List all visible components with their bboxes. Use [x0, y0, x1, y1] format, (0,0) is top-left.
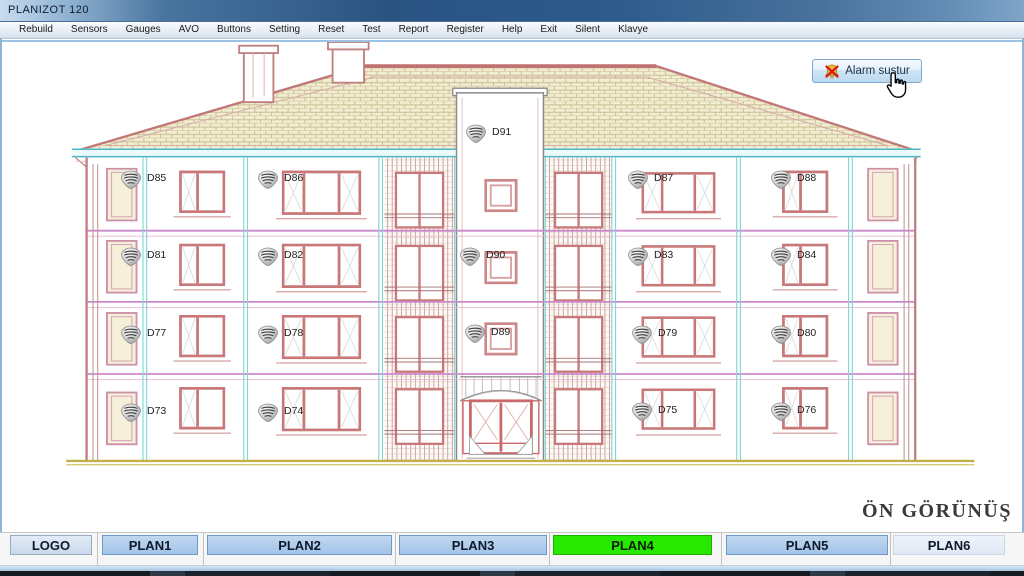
tab-divider — [890, 533, 891, 565]
menu-item-gauges[interactable]: Gauges — [117, 22, 170, 38]
tab-divider — [549, 533, 550, 565]
menu-item-test[interactable]: Test — [353, 22, 389, 38]
smoke-detector-icon — [120, 403, 142, 423]
detector-label: D86 — [284, 170, 303, 184]
menu-bar: RebuildSensorsGaugesAVOButtonsSettingRes… — [0, 22, 1024, 39]
detector-label: D77 — [147, 325, 166, 339]
smoke-detector-icon — [120, 170, 142, 190]
detector-label: D84 — [797, 247, 816, 261]
tab-plan4[interactable]: PLAN4 — [553, 535, 712, 555]
smoke-detector-icon — [627, 247, 649, 267]
detector-label: D88 — [797, 170, 816, 184]
tab-plan2[interactable]: PLAN2 — [207, 535, 392, 555]
tab-logo[interactable]: LOGO — [10, 535, 92, 555]
tab-plan1[interactable]: PLAN1 — [102, 535, 198, 555]
detector-marker-d88[interactable]: D88 — [770, 170, 816, 190]
tab-plan6[interactable]: PLAN6 — [893, 535, 1005, 555]
smoke-detector-icon — [770, 170, 792, 190]
smoke-detector-icon — [770, 402, 792, 422]
menu-item-silent[interactable]: Silent — [566, 22, 609, 38]
detector-label: D73 — [147, 403, 166, 417]
ground-line — [66, 461, 974, 465]
detector-marker-d79[interactable]: D79 — [631, 325, 677, 345]
smoke-detector-icon — [627, 170, 649, 190]
smoke-detector-icon — [459, 247, 481, 267]
detector-label: D74 — [284, 403, 303, 417]
tab-divider — [721, 533, 722, 565]
detector-marker-d73[interactable]: D73 — [120, 403, 166, 423]
alarm-bell-muted-icon — [824, 64, 840, 79]
taskbar-strip — [0, 571, 1024, 576]
detector-marker-d74[interactable]: D74 — [257, 403, 303, 423]
title-bar: PLANIZOT 120 — [0, 0, 1024, 22]
detector-label: D87 — [654, 170, 673, 184]
detector-marker-d87[interactable]: D87 — [627, 170, 673, 190]
smoke-detector-icon — [770, 325, 792, 345]
detector-marker-d80[interactable]: D80 — [770, 325, 816, 345]
view-caption: ÖN GÖRÜNÜŞ — [840, 500, 1012, 523]
smoke-detector-icon — [464, 324, 486, 344]
detector-marker-d90[interactable]: D90 — [459, 247, 505, 267]
window-border-left — [0, 38, 2, 571]
detector-marker-d75[interactable]: D75 — [631, 402, 677, 422]
smoke-detector-icon — [120, 247, 142, 267]
detector-marker-d84[interactable]: D84 — [770, 247, 816, 267]
menu-item-reset[interactable]: Reset — [309, 22, 353, 38]
detector-label: D81 — [147, 247, 166, 261]
app-window: PLANIZOT 120 RebuildSensorsGaugesAVOButt… — [0, 0, 1024, 576]
detector-marker-d78[interactable]: D78 — [257, 325, 303, 345]
detector-label: D80 — [797, 325, 816, 339]
menu-item-sensors[interactable]: Sensors — [62, 22, 117, 38]
menu-item-avo[interactable]: AVO — [170, 22, 208, 38]
tab-divider — [97, 533, 98, 565]
smoke-detector-icon — [631, 325, 653, 345]
detector-label: D79 — [658, 325, 677, 339]
hand-cursor-icon — [886, 72, 908, 103]
detector-label: D89 — [491, 324, 510, 338]
menu-item-rebuild[interactable]: Rebuild — [10, 22, 62, 38]
tab-divider — [395, 533, 396, 565]
detector-label: D91 — [492, 124, 511, 138]
menu-item-register[interactable]: Register — [438, 22, 493, 38]
menu-item-report[interactable]: Report — [390, 22, 438, 38]
menu-item-exit[interactable]: Exit — [531, 22, 566, 38]
detector-marker-d82[interactable]: D82 — [257, 247, 303, 267]
smoke-detector-icon — [770, 247, 792, 267]
menu-item-help[interactable]: Help — [493, 22, 532, 38]
detector-label: D85 — [147, 170, 166, 184]
detector-marker-d77[interactable]: D77 — [120, 325, 166, 345]
building-drawing — [0, 42, 1024, 534]
detector-label: D76 — [797, 402, 816, 416]
smoke-detector-icon — [120, 325, 142, 345]
detector-marker-d81[interactable]: D81 — [120, 247, 166, 267]
detector-marker-d83[interactable]: D83 — [627, 247, 673, 267]
smoke-detector-icon — [257, 247, 279, 267]
detector-marker-d86[interactable]: D86 — [257, 170, 303, 190]
detector-label: D78 — [284, 325, 303, 339]
plan-tab-bar: LOGOPLAN1PLAN2PLAN3PLAN4PLAN5PLAN6 — [0, 532, 1024, 565]
window-title: PLANIZOT 120 — [8, 4, 89, 16]
detector-marker-d76[interactable]: D76 — [770, 402, 816, 422]
detector-label: D83 — [654, 247, 673, 261]
detector-marker-d89[interactable]: D89 — [464, 324, 510, 344]
detector-marker-d91[interactable]: D91 — [465, 124, 511, 144]
smoke-detector-icon — [257, 170, 279, 190]
smoke-detector-icon — [465, 124, 487, 144]
detector-label: D82 — [284, 247, 303, 261]
menu-item-buttons[interactable]: Buttons — [208, 22, 260, 38]
detector-label: D75 — [658, 402, 677, 416]
smoke-detector-icon — [631, 402, 653, 422]
menu-item-klavye[interactable]: Klavye — [609, 22, 657, 38]
plan-canvas: D91 D85 — [0, 40, 1024, 532]
smoke-detector-icon — [257, 325, 279, 345]
smoke-detector-icon — [257, 403, 279, 423]
tab-plan5[interactable]: PLAN5 — [726, 535, 888, 555]
menu-item-setting[interactable]: Setting — [260, 22, 309, 38]
detector-marker-d85[interactable]: D85 — [120, 170, 166, 190]
detector-label: D90 — [486, 247, 505, 261]
tab-divider — [203, 533, 204, 565]
tab-plan3[interactable]: PLAN3 — [399, 535, 547, 555]
